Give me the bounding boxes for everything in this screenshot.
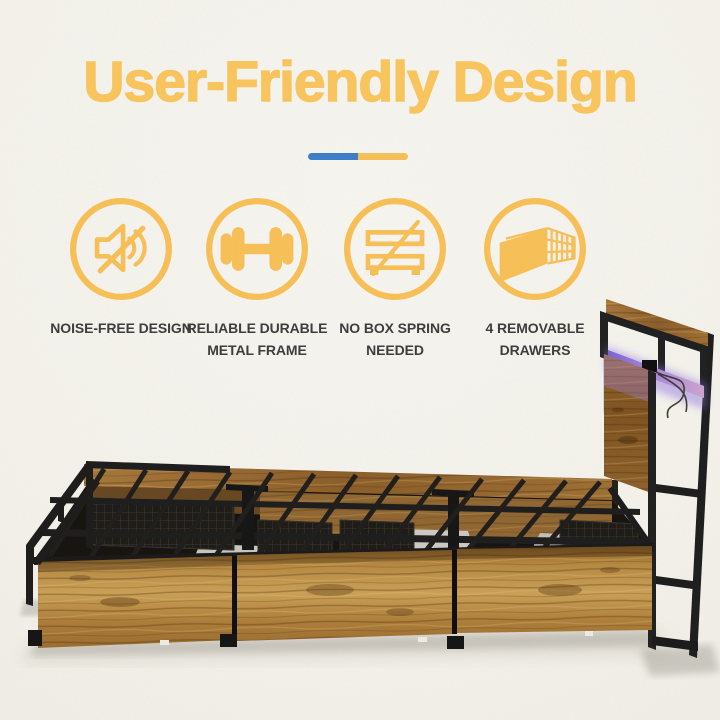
drawer-front [38, 556, 232, 648]
product-infographic: User-Friendly Design NOISE-FREE DESIGN [0, 0, 720, 720]
bed-frame-photo [0, 0, 720, 720]
drawer-front [237, 550, 452, 641]
headboard-panel [604, 354, 654, 494]
drawer-gap [232, 556, 237, 640]
drawer-gap [452, 550, 457, 634]
drawer-front [457, 546, 652, 633]
